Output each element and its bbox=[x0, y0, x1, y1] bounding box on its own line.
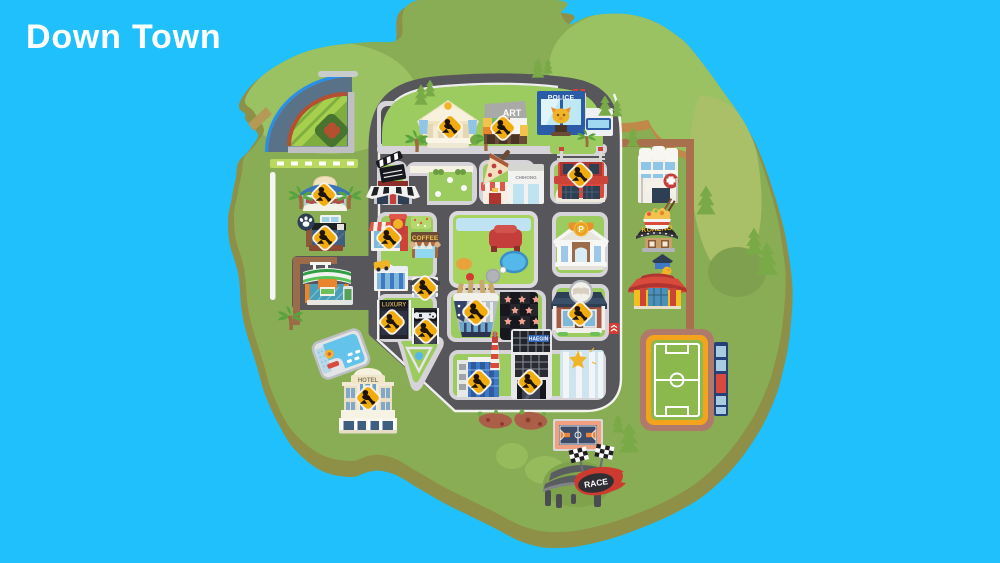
svg-text:Down Town: Down Town bbox=[26, 18, 221, 56]
svg-text:P: P bbox=[578, 225, 584, 234]
svg-text:HOTEL: HOTEL bbox=[358, 378, 379, 384]
svg-text:CHIHONG: CHIHONG bbox=[515, 175, 537, 180]
svg-text:HAEGIN: HAEGIN bbox=[529, 337, 549, 343]
svg-text:LUXURY: LUXURY bbox=[382, 303, 406, 309]
svg-text:COFFEE: COFFEE bbox=[412, 235, 439, 242]
svg-text:POLICE: POLICE bbox=[548, 95, 575, 102]
